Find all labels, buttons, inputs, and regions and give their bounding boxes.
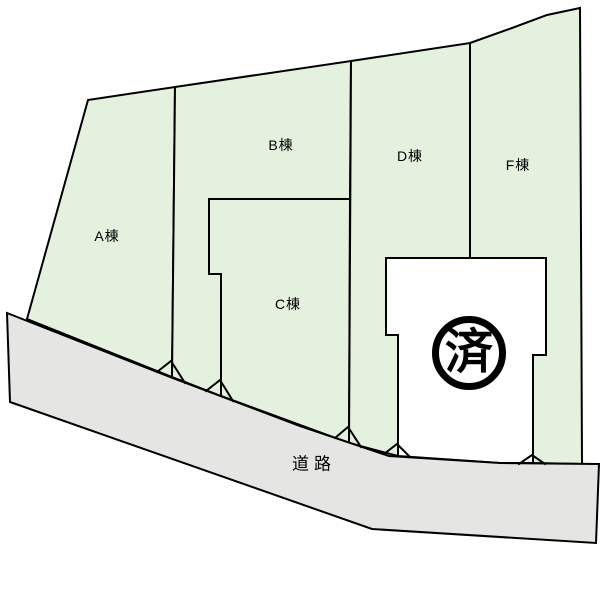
lot-label-c: C棟 bbox=[275, 297, 301, 311]
site-plan: A棟 B棟 C棟 D棟 F棟 道路 済 bbox=[0, 0, 600, 599]
sold-stamp: 済 bbox=[432, 316, 506, 390]
lot-label-b: B棟 bbox=[268, 138, 293, 152]
road-label: 道路 bbox=[292, 456, 336, 473]
lot-label-d: D棟 bbox=[397, 149, 423, 163]
lot-label-a: A棟 bbox=[94, 229, 119, 243]
lot-label-f: F棟 bbox=[506, 158, 531, 172]
sold-stamp-text: 済 bbox=[445, 329, 493, 377]
